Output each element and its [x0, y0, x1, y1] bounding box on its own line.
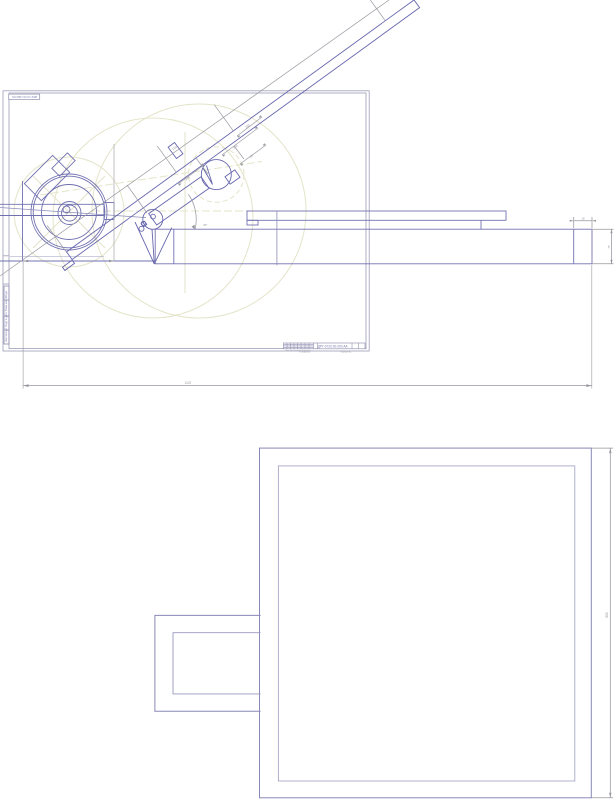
- svg-text:75: 75: [607, 245, 611, 249]
- svg-text:Подп и дата: Подп и дата: [4, 312, 8, 327]
- svg-text:18: 18: [581, 217, 585, 221]
- svg-text:ДРГ-0720.00.000 АА: ДРГ-0720.00.000 АА: [318, 344, 349, 348]
- svg-text:ЛН 0807.00.07-ЛАВ: ЛН 0807.00.07-ЛАВ: [12, 95, 37, 99]
- svg-text:Инв №подл: Инв №подл: [4, 328, 8, 342]
- svg-text:1147: 1147: [185, 381, 192, 385]
- svg-text:Копировал: Копировал: [300, 351, 312, 353]
- svg-text:Взам инв №: Взам инв №: [4, 296, 8, 311]
- svg-text:Подп: Подп: [4, 290, 8, 297]
- svg-text:600: 600: [605, 612, 609, 618]
- svg-text:Формат А1: Формат А1: [340, 350, 352, 353]
- svg-text:45°: 45°: [203, 223, 208, 227]
